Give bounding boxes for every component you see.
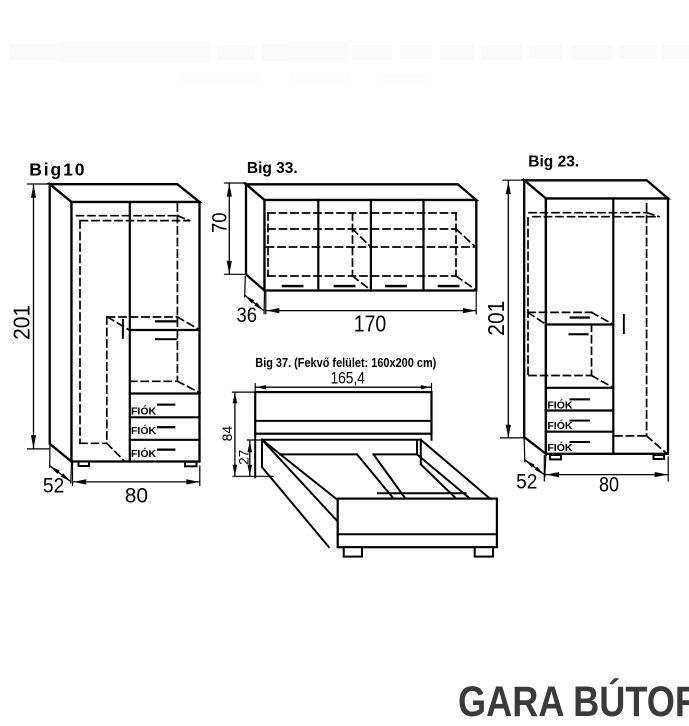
svg-text:27: 27 (236, 450, 251, 465)
svg-text:Big 23.: Big 23. (528, 153, 579, 170)
svg-text:GARA BÚTOR: GARA BÚTOR (458, 677, 689, 726)
svg-text:165,4: 165,4 (330, 370, 365, 388)
svg-text:Big10: Big10 (29, 159, 86, 179)
svg-text:52: 52 (516, 471, 537, 494)
svg-text:Big 37. (Fekvő felület: 160x20: Big 37. (Fekvő felület: 160x200 cm) (255, 356, 436, 370)
svg-text:FIÓK: FIÓK (547, 441, 572, 454)
svg-text:FIÓK: FIÓK (131, 404, 156, 417)
svg-text:36: 36 (237, 304, 258, 327)
svg-text:Big 33.: Big 33. (247, 160, 298, 177)
svg-text:84: 84 (219, 426, 235, 442)
svg-text:FIÓK: FIÓK (131, 447, 156, 460)
svg-text:FIÓK: FIÓK (131, 424, 156, 437)
svg-text:80: 80 (599, 473, 619, 496)
svg-text:80: 80 (125, 485, 148, 508)
svg-text:201: 201 (483, 301, 509, 336)
svg-text:FIÓK: FIÓK (547, 399, 572, 412)
svg-text:52: 52 (43, 474, 65, 497)
svg-text:170: 170 (354, 310, 387, 336)
svg-text:201: 201 (8, 305, 34, 340)
svg-text:FIÓK: FIÓK (547, 419, 572, 432)
svg-text:70: 70 (209, 212, 232, 233)
